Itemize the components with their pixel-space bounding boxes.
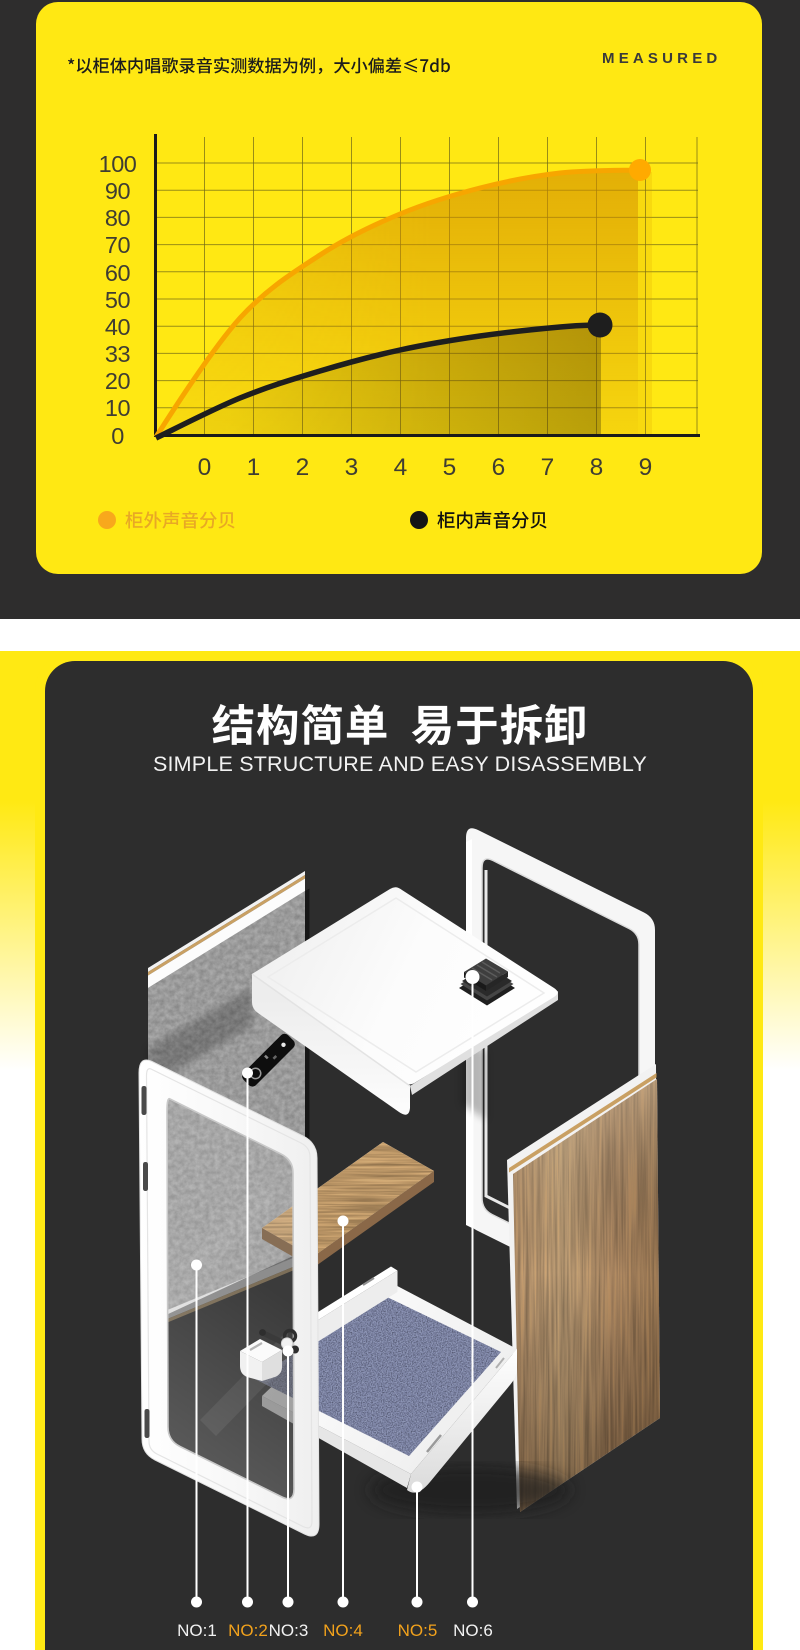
svg-text:NO:1: NO:1 [177, 1621, 217, 1640]
svg-text:1: 1 [247, 454, 261, 481]
svg-text:8: 8 [590, 454, 604, 481]
svg-text:5: 5 [443, 454, 457, 481]
svg-text:0: 0 [198, 454, 212, 481]
svg-text:100: 100 [99, 151, 137, 177]
svg-text:3: 3 [345, 454, 359, 481]
svg-text:4: 4 [394, 454, 408, 481]
svg-text:9: 9 [639, 454, 653, 481]
svg-text:33: 33 [105, 341, 131, 367]
svg-text:NO:5: NO:5 [398, 1621, 438, 1640]
svg-text:90: 90 [105, 178, 131, 204]
svg-text:NO:2: NO:2 [228, 1621, 268, 1640]
svg-text:20: 20 [105, 368, 131, 394]
svg-text:40: 40 [105, 314, 131, 340]
svg-text:60: 60 [105, 260, 131, 286]
svg-text:80: 80 [105, 205, 131, 231]
svg-text:10: 10 [105, 395, 131, 421]
svg-text:2: 2 [296, 454, 310, 481]
svg-text:70: 70 [105, 232, 131, 258]
svg-text:0: 0 [111, 423, 124, 449]
svg-text:NO:6: NO:6 [453, 1621, 493, 1640]
svg-text:7: 7 [541, 454, 555, 481]
svg-text:50: 50 [105, 287, 131, 313]
svg-text:NO:3: NO:3 [269, 1621, 309, 1640]
svg-text:NO:4: NO:4 [323, 1621, 363, 1640]
svg-text:6: 6 [492, 454, 506, 481]
